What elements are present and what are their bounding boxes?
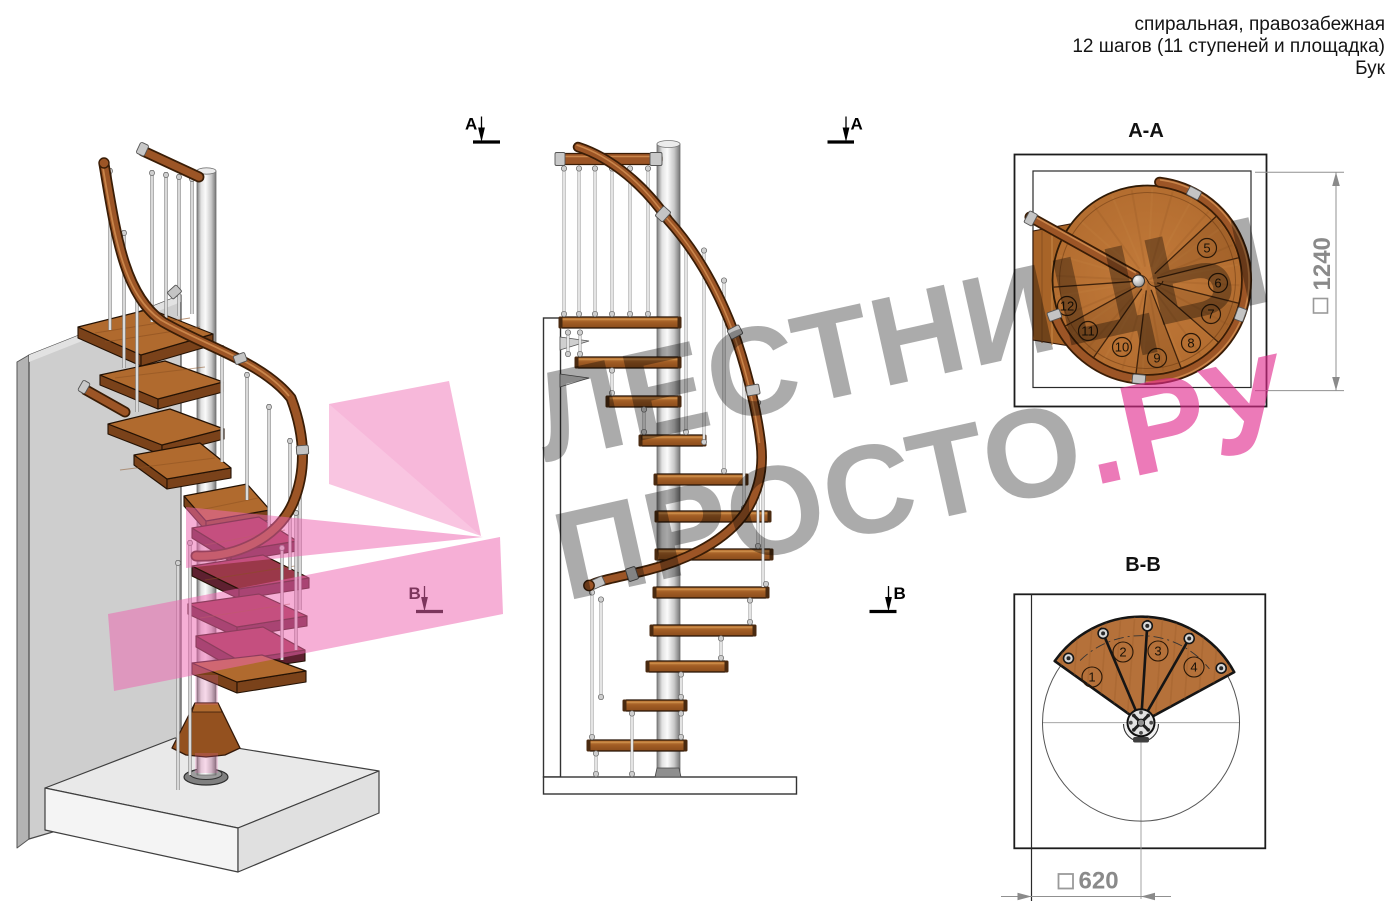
svg-text:Бук: Бук — [1355, 58, 1386, 79]
svg-text:спиральная, правозабежная: спиральная, правозабежная — [1135, 14, 1385, 35]
svg-text:А-А: А-А — [1128, 120, 1164, 142]
svg-text:A: A — [465, 115, 477, 134]
svg-text:3: 3 — [1154, 644, 1161, 659]
svg-text:1240: 1240 — [1309, 237, 1336, 290]
svg-text:12 шагов (11 ступеней и площад: 12 шагов (11 ступеней и площадка) — [1072, 36, 1385, 57]
svg-text:4: 4 — [1190, 660, 1197, 675]
svg-text:В-В: В-В — [1125, 554, 1161, 576]
svg-text:1: 1 — [1088, 670, 1095, 685]
svg-text:B: B — [894, 584, 906, 603]
svg-text:2: 2 — [1119, 645, 1126, 660]
svg-text:620: 620 — [1079, 868, 1119, 895]
svg-text:A: A — [851, 115, 863, 134]
